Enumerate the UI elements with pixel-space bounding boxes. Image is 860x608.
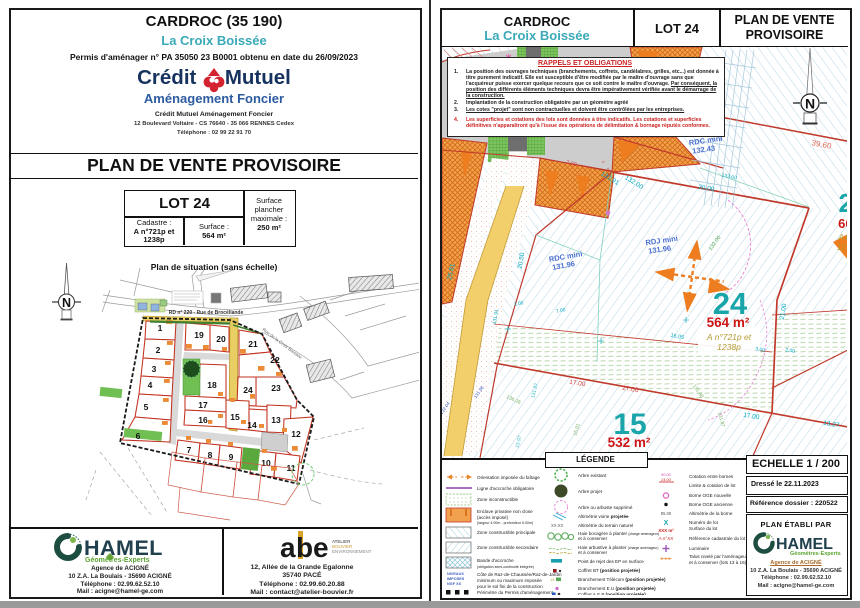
svg-text:Luminaire: Luminaire: [689, 546, 710, 551]
svg-text:Orientation imposée du faîtage: Orientation imposée du faîtage: [477, 475, 540, 480]
svg-text:(largeur 4.00m - profondeur 5.: (largeur 4.00m - profondeur 5.00m): [477, 521, 533, 525]
svg-text:e: e: [313, 532, 329, 561]
svg-text:Surface du lot: Surface du lot: [689, 526, 718, 531]
svg-text:Bande d'accroche: Bande d'accroche: [477, 558, 514, 563]
svg-text:20: 20: [216, 334, 226, 344]
svg-text:N: N: [805, 96, 815, 112]
svg-text:50.00: 50.00: [661, 473, 671, 477]
svg-text:22: 22: [270, 355, 280, 365]
svg-text:Branchement Télécom (position: Branchement Télécom (position projetée): [578, 577, 666, 582]
svg-text:18: 18: [207, 380, 217, 390]
svg-text:663: 663: [838, 216, 847, 231]
svg-text:Cotation entre bornes: Cotation entre bornes: [689, 474, 734, 479]
svg-text:Altimétrie de la borne: Altimétrie de la borne: [689, 511, 733, 516]
svg-text:Altimétrie du terrain naturel: Altimétrie du terrain naturel: [578, 523, 633, 528]
svg-text:XX.XX: XX.XX: [551, 523, 564, 528]
svg-text:23: 23: [271, 383, 281, 393]
svg-text:Limite & cotation de lot: Limite & cotation de lot: [689, 483, 736, 488]
svg-text:minimum ou maximum imposée: minimum ou maximum imposée: [477, 578, 542, 583]
svg-text:NIVEAUX: NIVEAUX: [447, 572, 464, 576]
svg-text:A n°XX: A n°XX: [658, 536, 675, 541]
svg-text:b: b: [296, 532, 313, 561]
svg-text:1: 1: [158, 323, 163, 333]
svg-text:Point de rejet des EP en surfa: Point de rejet des EP en surface: [578, 559, 644, 564]
svg-text:Géomètres-Experts: Géomètres-Experts: [790, 551, 841, 556]
svg-text:Borne OGE nouvelle: Borne OGE nouvelle: [689, 493, 732, 498]
svg-text:Coffret BT (position projetée): Coffret BT (position projetée): [578, 568, 641, 573]
svg-text:85.00: 85.00: [661, 511, 672, 516]
svg-text:A n°: A n°: [838, 233, 847, 242]
svg-text:4: 4: [148, 380, 153, 390]
svg-text:A n°721p et: A n°721p et: [706, 332, 752, 342]
svg-text:(obligation semi-continuité in: (obligation semi-continuité intégrée): [477, 565, 534, 569]
svg-text:Enclave privative non close: Enclave privative non close: [477, 509, 533, 514]
svg-text:7: 7: [187, 445, 192, 455]
svg-text:ENVIRONNEMENT: ENVIRONNEMENT: [332, 549, 372, 554]
svg-text:RD n° 220 - Rue de Brocéliand: RD n° 220 - Rue de Brocéliande: [169, 310, 244, 316]
svg-text:12: 12: [291, 429, 301, 439]
svg-text:532 m²: 532 m²: [608, 435, 651, 450]
svg-text:et à conserver: et à conserver: [578, 550, 608, 555]
svg-text:24: 24: [243, 385, 253, 395]
svg-text:24.00: 24.00: [661, 478, 671, 482]
svg-text:et à conserver (lots 13 à 16): et à conserver (lots 13 à 16): [689, 560, 746, 565]
svg-text:19: 19: [194, 330, 204, 340]
svg-text:14: 14: [247, 420, 257, 430]
svg-text:Zone constructible secondaire: Zone constructible secondaire: [477, 545, 539, 550]
svg-text:Numéro de lot: Numéro de lot: [689, 520, 719, 525]
svg-text:pour le sol fini de la constru: pour le sol fini de la construction: [477, 584, 543, 589]
svg-text:21: 21: [248, 339, 258, 349]
svg-text:(accès imposé): (accès imposé): [477, 515, 509, 520]
svg-text:9: 9: [229, 452, 234, 462]
svg-text:Altimétrie voirie projetée: Altimétrie voirie projetée: [578, 514, 629, 519]
svg-text:Arbre ou arbuste supprimé: Arbre ou arbuste supprimé: [578, 505, 633, 510]
svg-text:10: 10: [261, 458, 271, 468]
svg-text:2: 2: [156, 345, 161, 355]
svg-text:Référence cadastrale du lot: Référence cadastrale du lot: [689, 536, 746, 541]
svg-text:Zone inconstructible: Zone inconstructible: [477, 497, 519, 502]
svg-text:Talus nivelé par l'aménageur: Talus nivelé par l'aménageur: [689, 554, 746, 559]
svg-text:Borne OGE ancienne: Borne OGE ancienne: [689, 502, 733, 507]
svg-text:15: 15: [230, 412, 240, 422]
svg-text:13: 13: [271, 415, 281, 425]
svg-text:Zone constructible principale: Zone constructible principale: [477, 530, 536, 535]
svg-text:5: 5: [144, 402, 149, 412]
svg-text:16: 16: [198, 415, 208, 425]
svg-text:Branchement E.U (position proj: Branchement E.U (position projetée): [578, 586, 656, 591]
svg-text:23: 23: [839, 188, 847, 218]
svg-text:14: 14: [550, 577, 555, 582]
svg-text:↞↞↞: ↞↞↞: [660, 556, 673, 561]
svg-text:IMPOSES: IMPOSES: [447, 577, 465, 581]
svg-text:Ligne d'accroche obligatoire: Ligne d'accroche obligatoire: [477, 486, 535, 491]
svg-text:17: 17: [198, 400, 208, 410]
svg-text:Coffret A.E.P (position projet: Coffret A.E.P (position projetée): [578, 592, 646, 595]
svg-text:Arbre projet: Arbre projet: [578, 489, 603, 494]
svg-text:1238p: 1238p: [717, 342, 741, 352]
svg-text:1236p: 1236p: [837, 243, 847, 252]
svg-text:Périmètre du Permis d'aménagem: Périmètre du Permis d'aménagement: [477, 590, 554, 595]
svg-text:3: 3: [152, 364, 157, 374]
svg-text:NGF XX: NGF XX: [447, 582, 462, 586]
svg-text:et à conserver: et à conserver: [578, 536, 608, 541]
svg-text:Arbre existant: Arbre existant: [578, 473, 607, 478]
svg-text:N: N: [62, 296, 71, 310]
svg-text:X: X: [664, 520, 669, 527]
svg-text:6: 6: [136, 431, 141, 441]
svg-text:a: a: [280, 532, 296, 561]
svg-text:XXX m²: XXX m²: [658, 528, 674, 533]
